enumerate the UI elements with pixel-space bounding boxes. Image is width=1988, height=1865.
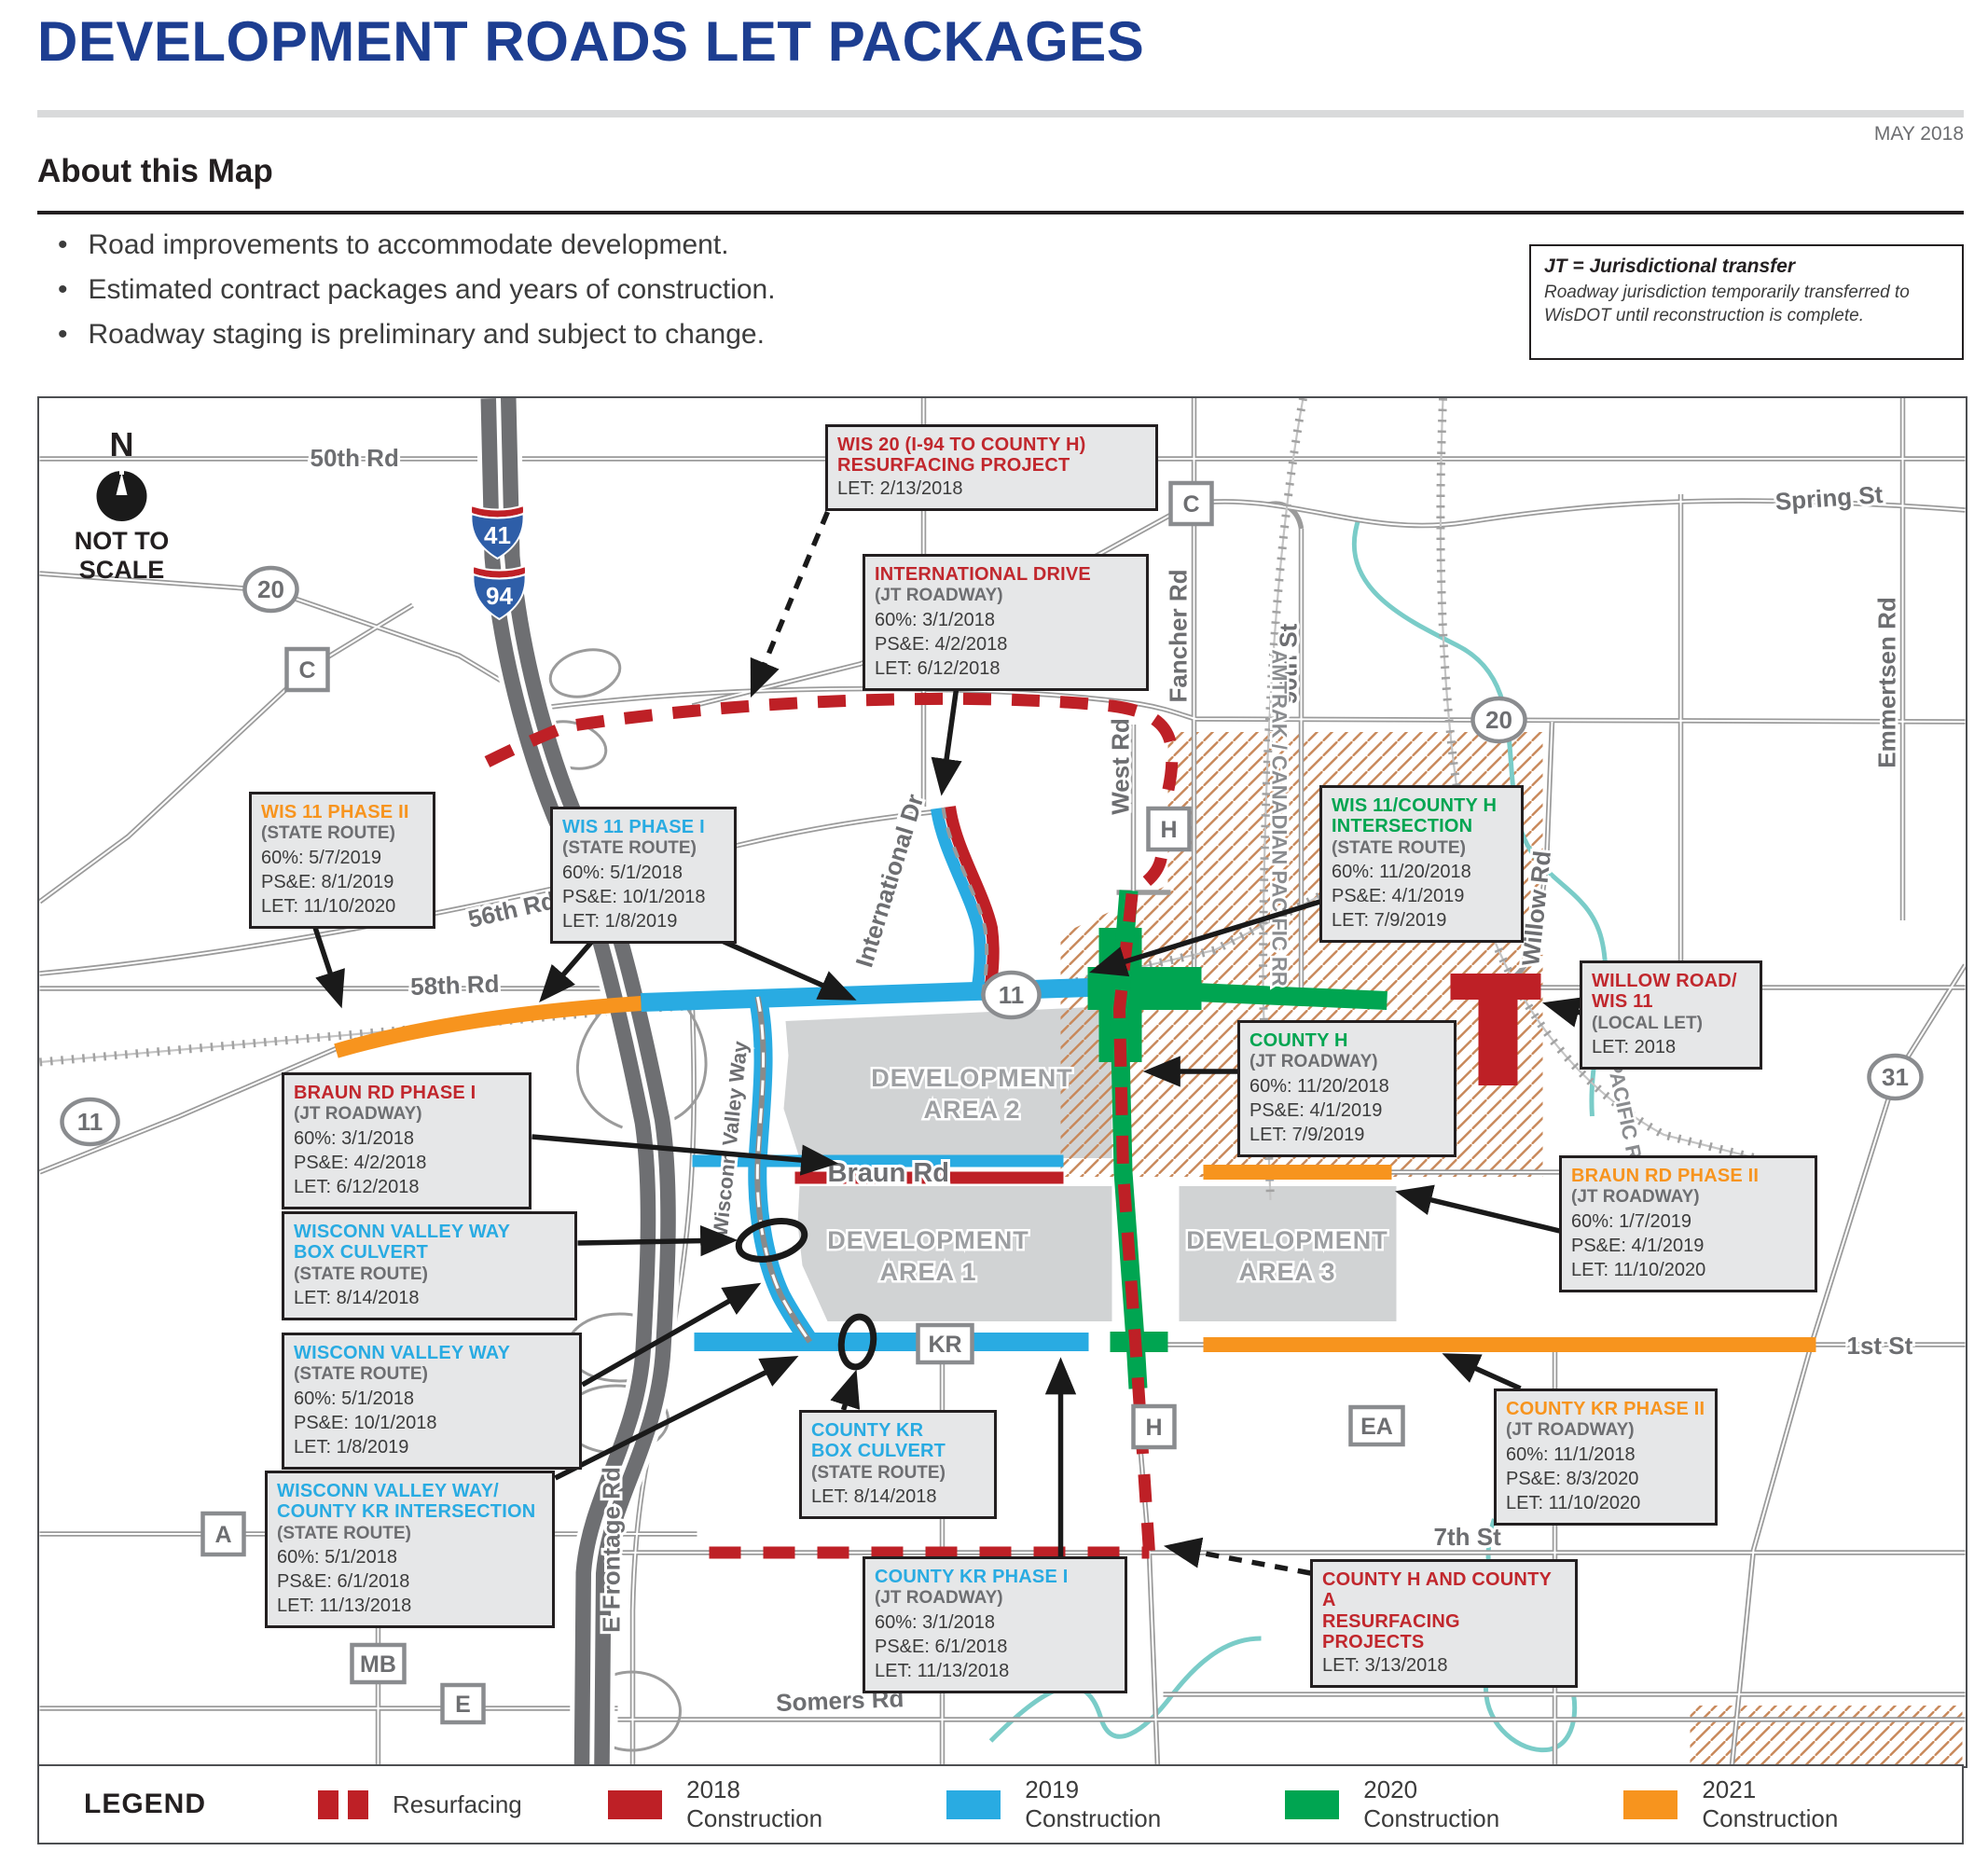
callout-title: COUNTY H AND COUNTY A RESURFACING PROJEC… <box>1322 1569 1566 1653</box>
callout-row: 60%: 3/1/2018 <box>875 1610 1115 1635</box>
svg-text:H: H <box>1160 817 1177 843</box>
page: { "header": { "title": "DEVELOPMENT ROAD… <box>0 0 1988 1865</box>
callout-braun-rd-phase1: BRAUN RD PHASE I (JT ROADWAY) 60%: 3/1/2… <box>282 1072 532 1209</box>
route-oval-11-west: 11 <box>62 1099 118 1144</box>
svg-text:AREA 1: AREA 1 <box>879 1258 976 1286</box>
svg-text:20: 20 <box>1485 706 1512 734</box>
callout-title: WISCONN VALLEY WAY <box>294 1343 570 1363</box>
route-oval-11-center: 11 <box>984 973 1040 1017</box>
callout-subtitle: (STATE ROUTE) <box>277 1523 543 1546</box>
legend-item-2019: 2019 Construction <box>946 1775 1199 1833</box>
callout-row: PS&E: 4/1/2019 <box>1249 1098 1444 1123</box>
svg-text:AREA 2: AREA 2 <box>923 1096 1020 1124</box>
legend-item-resurfacing: Resurfacing <box>318 1790 522 1819</box>
callout-row: PS&E: 8/3/2020 <box>1506 1467 1705 1491</box>
callout-wisconn-valley-way: WISCONN VALLEY WAY (STATE ROUTE) 60%: 5/… <box>282 1333 582 1470</box>
legend-label: Resurfacing <box>393 1790 522 1819</box>
construction-2021-swatch-icon <box>1623 1790 1677 1819</box>
callout-subtitle: (STATE ROUTE) <box>294 1264 565 1287</box>
callout-row: 60%: 5/1/2018 <box>562 861 725 885</box>
legend-label: 2021 Construction <box>1702 1775 1876 1833</box>
svg-text:DEVELOPMENT: DEVELOPMENT <box>827 1226 1029 1254</box>
callout-subtitle: (JT ROADWAY) <box>294 1103 519 1126</box>
about-heading: About this Map <box>37 153 273 190</box>
shield-route-94: 94 <box>486 582 513 610</box>
callout-row: PS&E: 4/1/2019 <box>1571 1234 1805 1258</box>
svg-text:11: 11 <box>77 1108 104 1136</box>
svg-text:A: A <box>214 1522 231 1548</box>
callout-row: LET: 11/10/2020 <box>261 894 423 919</box>
county-marker-h-south: H <box>1134 1406 1175 1447</box>
callout-county-kr-box-culvert: COUNTY KR BOX CULVERT (STATE ROUTE) LET:… <box>799 1410 997 1519</box>
willow-wis11-2018 <box>1451 974 1541 1000</box>
about-divider <box>37 211 1964 214</box>
page-title: DEVELOPMENT ROADS LET PACKAGES <box>37 9 1144 74</box>
svg-text:DEVELOPMENT: DEVELOPMENT <box>1186 1226 1388 1254</box>
bullet-item: • Road improvements to accommodate devel… <box>58 229 776 274</box>
route-oval-31: 31 <box>1870 1056 1922 1098</box>
bullet-icon: • <box>58 229 68 261</box>
not-to-scale-line2: SCALE <box>79 556 165 584</box>
callout-row: 60%: 11/1/2018 <box>1506 1443 1705 1467</box>
callout-title: WILLOW ROAD/ WIS 11 <box>1592 971 1750 1013</box>
resurfacing-swatch-icon <box>318 1790 368 1819</box>
callout-row: LET: 6/12/2018 <box>875 656 1137 681</box>
legend: LEGEND Resurfacing 2018 Construction 201… <box>37 1764 1964 1844</box>
compass-north-label: N <box>110 425 134 463</box>
callout-row: PS&E: 10/1/2018 <box>294 1411 570 1435</box>
map-panel: N NOT TO SCALE 41 94 20 20 11 11 <box>37 396 1967 1768</box>
svg-text:C: C <box>1182 491 1199 518</box>
svg-text:20: 20 <box>257 575 284 603</box>
label-emmertsen-rd: Emmertsen Rd <box>1873 597 1901 768</box>
callout-row: 60%: 3/1/2018 <box>294 1126 519 1151</box>
callout-title: WIS 20 (I-94 TO COUNTY H) RESURFACING PR… <box>837 435 1146 477</box>
county-marker-h-north: H <box>1149 808 1190 850</box>
callout-subtitle: (STATE ROUTE) <box>294 1363 570 1387</box>
callout-row: PS&E: 4/2/2018 <box>875 632 1137 656</box>
callout-subtitle: (JT ROADWAY) <box>875 1587 1115 1610</box>
callout-row: PS&E: 10/1/2018 <box>562 885 725 909</box>
bullet-text: Road improvements to accommodate develop… <box>89 229 729 261</box>
label-wisconn-valley-way: Wisconn Valley Way <box>709 1039 752 1237</box>
callout-title: WISCONN VALLEY WAY BOX CULVERT <box>294 1222 565 1264</box>
callout-row: 60%: 5/1/2018 <box>277 1545 543 1569</box>
callout-row: LET: 3/13/2018 <box>1322 1653 1566 1678</box>
callout-wisconn-valley-way-county-kr-intersection: WISCONN VALLEY WAY/ COUNTY KR INTERSECTI… <box>265 1471 555 1628</box>
bullet-item: • Estimated contract packages and years … <box>58 274 776 319</box>
label-50th-rd: 50th Rd <box>311 444 399 472</box>
callout-row: LET: 1/8/2019 <box>294 1435 570 1459</box>
callout-row: 60%: 11/20/2018 <box>1249 1074 1444 1098</box>
county-marker-ea: EA <box>1351 1407 1403 1444</box>
svg-text:C: C <box>298 657 315 684</box>
svg-text:H: H <box>1145 1415 1162 1441</box>
construction-2018-swatch-icon <box>608 1790 662 1819</box>
callout-row: PS&E: 4/1/2019 <box>1332 884 1512 908</box>
callout-subtitle: (LOCAL LET) <box>1592 1013 1750 1036</box>
svg-text:KR: KR <box>928 1332 961 1358</box>
svg-text:31: 31 <box>1882 1063 1909 1091</box>
callout-subtitle: (STATE ROUTE) <box>261 822 423 846</box>
jt-note-box: JT = Jurisdictional transfer Roadway jur… <box>1529 244 1964 360</box>
callout-row: LET: 11/10/2020 <box>1571 1258 1805 1282</box>
construction-2019-swatch-icon <box>946 1790 1001 1819</box>
route-oval-20-east: 20 <box>1473 698 1526 741</box>
callout-title: WISCONN VALLEY WAY/ COUNTY KR INTERSECTI… <box>277 1481 543 1523</box>
county-marker-e: E <box>443 1685 484 1722</box>
svg-text:11: 11 <box>999 981 1025 1009</box>
bullet-icon: • <box>58 274 68 306</box>
legend-item-2021: 2021 Construction <box>1623 1775 1876 1833</box>
svg-text:MB: MB <box>360 1651 396 1678</box>
date-label: MAY 2018 <box>1874 123 1964 145</box>
callout-title: WIS 11 PHASE I <box>562 817 725 837</box>
callout-row: 60%: 1/7/2019 <box>1571 1209 1805 1234</box>
callout-county-h: COUNTY H (JT ROADWAY) 60%: 11/20/2018 PS… <box>1237 1020 1456 1157</box>
legend-label: 2020 Construction <box>1363 1775 1538 1833</box>
callout-row: LET: 7/9/2019 <box>1249 1123 1444 1147</box>
callout-wis20-resurfacing: WIS 20 (I-94 TO COUNTY H) RESURFACING PR… <box>825 424 1158 511</box>
callout-row: PS&E: 6/1/2018 <box>875 1635 1115 1659</box>
label-e-frontage-rd: E Frontage Rd <box>598 1467 626 1633</box>
callout-title: INTERNATIONAL DRIVE <box>875 564 1137 585</box>
callout-subtitle: (JT ROADWAY) <box>1249 1051 1444 1074</box>
callout-title: WIS 11 PHASE II <box>261 802 423 822</box>
county-marker-kr: KR <box>918 1325 973 1362</box>
callout-row: LET: 8/14/2018 <box>811 1485 985 1509</box>
county-marker-c-west: C <box>287 649 328 690</box>
county-marker-mb: MB <box>352 1645 405 1682</box>
callout-row: LET: 2018 <box>1592 1035 1750 1059</box>
callout-title: COUNTY KR PHASE I <box>875 1567 1115 1587</box>
callout-subtitle: (STATE ROUTE) <box>811 1462 985 1485</box>
callout-row: 60%: 5/1/2018 <box>294 1387 570 1411</box>
callout-wis11-county-h-intersection: WIS 11/COUNTY H INTERSECTION (STATE ROUT… <box>1319 785 1524 943</box>
legend-label: 2018 Construction <box>686 1775 861 1833</box>
callout-row: PS&E: 6/1/2018 <box>277 1569 543 1594</box>
svg-text:EA: EA <box>1360 1414 1393 1440</box>
jt-note-body: Roadway jurisdiction temporarily transfe… <box>1544 282 1949 327</box>
callout-row: PS&E: 4/2/2018 <box>294 1151 519 1175</box>
callout-row: LET: 11/13/2018 <box>875 1659 1115 1683</box>
bullet-text: Roadway staging is preliminary and subje… <box>89 319 765 351</box>
bullet-icon: • <box>58 319 68 351</box>
label-braun-rd: Braun Rd <box>828 1158 950 1188</box>
callout-title: COUNTY KR BOX CULVERT <box>811 1420 985 1462</box>
label-1st-st: 1st St <box>1847 1332 1913 1360</box>
svg-text:E: E <box>455 1692 471 1718</box>
route-oval-20-west: 20 <box>245 568 297 611</box>
legend-heading: LEGEND <box>84 1789 206 1820</box>
callout-willow-road-wis11: WILLOW ROAD/ WIS 11 (LOCAL LET) LET: 201… <box>1580 960 1762 1070</box>
callout-row: LET: 1/8/2019 <box>562 909 725 933</box>
callout-title: COUNTY KR PHASE II <box>1506 1399 1705 1419</box>
callout-subtitle: (STATE ROUTE) <box>1332 837 1512 861</box>
callout-subtitle: (JT ROADWAY) <box>1571 1186 1805 1209</box>
callout-row: LET: 11/13/2018 <box>277 1594 543 1618</box>
jt-note-title: JT = Jurisdictional transfer <box>1544 256 1949 278</box>
callout-row: 60%: 11/20/2018 <box>1332 860 1512 884</box>
svg-text:AREA 3: AREA 3 <box>1238 1258 1335 1286</box>
callout-title: WIS 11/COUNTY H INTERSECTION <box>1332 795 1512 837</box>
callout-row: PS&E: 8/1/2019 <box>261 870 423 894</box>
callout-subtitle: (STATE ROUTE) <box>562 837 725 861</box>
bullet-item: • Roadway staging is preliminary and sub… <box>58 319 776 364</box>
label-amtrak-rr: AMTRAK / CANADIAN PACIFIC RR <box>1268 649 1291 986</box>
callout-subtitle: (JT ROADWAY) <box>875 585 1137 608</box>
county-marker-c-north: C <box>1171 483 1212 524</box>
legend-item-2018: 2018 Construction <box>608 1775 861 1833</box>
callout-row: 60%: 3/1/2018 <box>875 608 1137 632</box>
label-fancher-rd: Fancher Rd <box>1165 569 1193 702</box>
compass: N NOT TO SCALE <box>75 425 170 584</box>
label-7th-st: 7th St <box>1434 1523 1502 1551</box>
svg-text:DEVELOPMENT: DEVELOPMENT <box>871 1064 1073 1092</box>
label-56th-rd: 56th Rd <box>465 886 559 933</box>
wis11-phase2-2021 <box>337 1003 642 1051</box>
callout-row: LET: 2/13/2018 <box>837 477 1146 501</box>
callout-title: COUNTY H <box>1249 1030 1444 1051</box>
callout-braun-rd-phase2: BRAUN RD PHASE II (JT ROADWAY) 60%: 1/7/… <box>1559 1155 1817 1292</box>
legend-label: 2019 Construction <box>1025 1775 1199 1833</box>
label-58th-rd: 58th Rd <box>410 970 500 1001</box>
callout-subtitle: (JT ROADWAY) <box>1506 1419 1705 1443</box>
callout-county-kr-phase2: COUNTY KR PHASE II (JT ROADWAY) 60%: 11/… <box>1494 1388 1718 1526</box>
callout-international-drive: INTERNATIONAL DRIVE (JT ROADWAY) 60%: 3/… <box>863 554 1149 691</box>
label-west-rd: West Rd <box>1107 718 1135 815</box>
construction-2020-swatch-icon <box>1285 1790 1339 1819</box>
header-divider <box>37 110 1964 117</box>
about-bullets: • Road improvements to accommodate devel… <box>58 229 776 364</box>
callout-title: BRAUN RD PHASE I <box>294 1083 519 1103</box>
callout-wis11-phase1: WIS 11 PHASE I (STATE ROUTE) 60%: 5/1/20… <box>550 807 737 944</box>
callout-row: LET: 11/10/2020 <box>1506 1491 1705 1515</box>
callout-row: 60%: 5/7/2019 <box>261 846 423 870</box>
not-to-scale-line1: NOT TO <box>75 527 170 555</box>
callout-row: LET: 8/14/2018 <box>294 1286 565 1310</box>
callout-row: LET: 6/12/2018 <box>294 1175 519 1199</box>
bullet-text: Estimated contract packages and years of… <box>89 274 776 306</box>
label-spring-st: Spring St <box>1774 480 1884 516</box>
legend-item-2020: 2020 Construction <box>1285 1775 1538 1833</box>
callout-title: BRAUN RD PHASE II <box>1571 1166 1805 1186</box>
callout-county-kr-phase1: COUNTY KR PHASE I (JT ROADWAY) 60%: 3/1/… <box>863 1556 1127 1693</box>
callout-wis11-phase2: WIS 11 PHASE II (STATE ROUTE) 60%: 5/7/2… <box>249 792 435 929</box>
callout-county-h-county-a-resurfacing: COUNTY H AND COUNTY A RESURFACING PROJEC… <box>1310 1559 1578 1688</box>
county-marker-a: A <box>203 1513 244 1554</box>
callout-wisconn-valley-way-box-culvert: WISCONN VALLEY WAY BOX CULVERT (STATE RO… <box>282 1211 577 1320</box>
shield-route-41: 41 <box>484 521 511 549</box>
callout-row: LET: 7/9/2019 <box>1332 908 1512 932</box>
